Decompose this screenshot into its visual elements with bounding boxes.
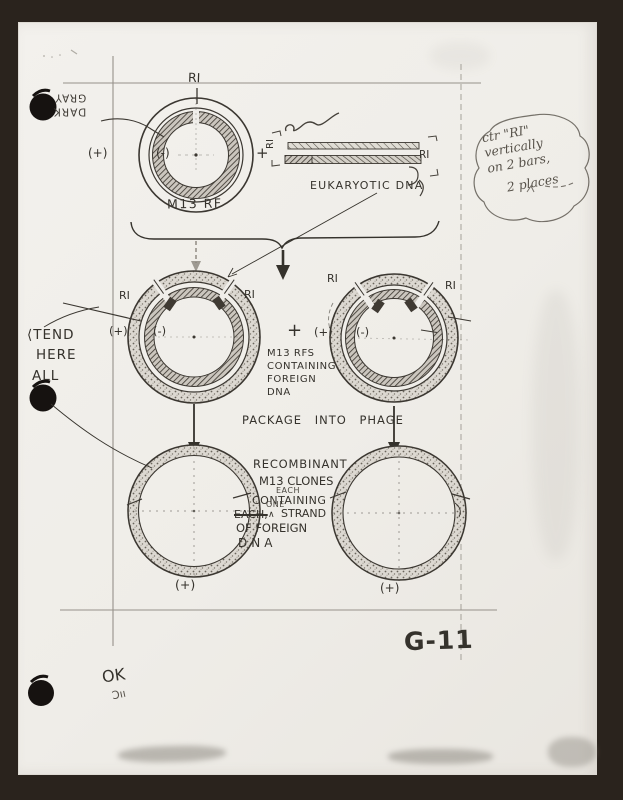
dark-gray-note: DARK GRAY — [53, 90, 86, 117]
margin-bubble-note: ctr "RI" vertically on 2 bars, 2 places — [481, 119, 560, 198]
dark-gray-line2: GRAY — [53, 90, 86, 104]
eukaryotic-dna-label: EUKARYOTIC DNA — [310, 179, 423, 192]
ri-label-mid-left-b: RI — [244, 288, 255, 301]
ri-label-mid-left-a: RI — [119, 289, 130, 302]
diagram-linework — [0, 0, 623, 800]
package-arrows — [188, 404, 400, 455]
plus-strand-label-mid-right: (+) — [314, 326, 333, 340]
ri-label-bar-left: RI — [265, 139, 277, 149]
toner-streak-right-margin — [532, 290, 580, 560]
stray-pen-curve — [51, 404, 152, 468]
toner-smudge-bottom-center — [388, 749, 493, 764]
ri-label-bar-right: RI — [419, 149, 429, 162]
plus-strand-label-bottom-right: (+) — [380, 581, 399, 595]
recombinant-line3: CONTAINING — [252, 494, 326, 507]
minus-strand-label-mid-left: (-) — [153, 325, 166, 339]
scanned-page-photo: DARK GRAY RI (+) (-) M13 RF + RI RI EUKA… — [0, 0, 623, 800]
extend-line3: ALL — [27, 366, 77, 386]
eukaryotic-dna-bars — [285, 143, 421, 164]
word-strand: STRAND — [281, 507, 326, 520]
plus-strand-label-top: (+) — [88, 146, 107, 160]
ok-annotation: OK — [101, 664, 127, 686]
m13-rf-plasmid — [101, 88, 253, 212]
pencil-specks — [43, 50, 77, 58]
toner-smudge-bottom-right — [548, 737, 596, 767]
hole-punch-bottom — [28, 676, 54, 706]
ri-label-top: RI — [188, 70, 201, 85]
figure-number: G-11 — [403, 625, 474, 657]
package-into-phage-label: PACKAGE INTO PHAGE — [242, 414, 404, 428]
m13-rfs-caption-line3: FOREIGN — [267, 373, 336, 386]
m13-rfs-caption-line4: DNA — [267, 386, 336, 399]
toner-smudge-top-right — [430, 42, 490, 70]
m13-rf-label: M13 RF — [167, 196, 223, 212]
plus-strand-label-mid-left: (+) — [109, 325, 128, 339]
caret-mark: ∧ — [268, 510, 275, 521]
m13-rfs-right-plasmid — [329, 274, 471, 402]
minus-strand-label-mid-right: (-) — [356, 326, 369, 340]
extend-line2: HERE — [27, 345, 77, 365]
m13-rfs-caption-line1: M13 RFS — [267, 347, 336, 360]
ri-label-mid-right-a: RI — [327, 272, 338, 285]
recombinant-line5: OF FOREIGN — [236, 522, 307, 536]
initials-mark: Ɔıı — [111, 687, 127, 703]
cursive-squiggle — [286, 113, 339, 131]
phage-right-circle — [330, 446, 470, 581]
ri-label-mid-right-b: RI — [445, 279, 456, 292]
plus-strand-label-bottom-left: (+) — [175, 577, 195, 592]
minus-strand-label-top: (-) — [156, 146, 170, 160]
extend-line1: ⟨TEND — [27, 325, 77, 345]
extend-here-note: ⟨TEND HERE ALL — [27, 325, 77, 386]
plus-sign-middle: + — [287, 320, 302, 342]
m13-rfs-caption: M13 RFS CONTAINING FOREIGN DNA — [267, 347, 336, 399]
recombinant-line1: RECOMBINANT — [253, 458, 347, 472]
recombinant-line6: DNA — [238, 536, 276, 550]
struck-word-each: EACH, — [234, 508, 268, 521]
dark-gray-line1: DARK — [53, 104, 86, 118]
m13-rfs-caption-line2: CONTAINING — [267, 360, 336, 373]
